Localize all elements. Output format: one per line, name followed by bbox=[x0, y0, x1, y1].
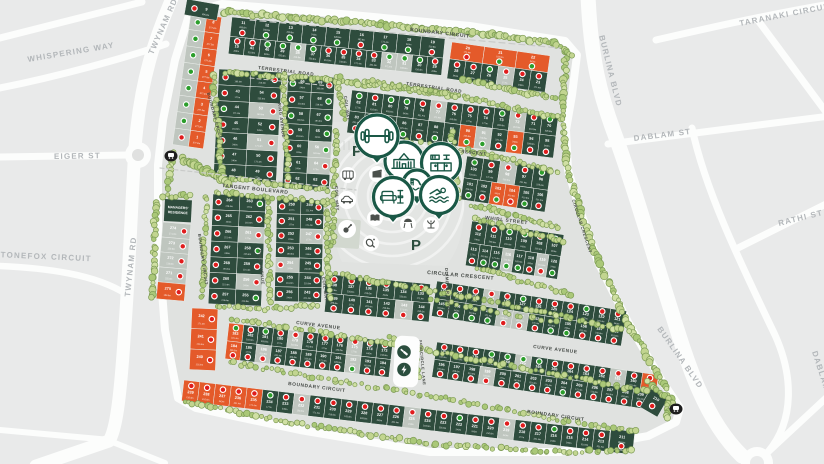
svg-text:13: 13 bbox=[288, 26, 293, 30]
svg-text:35: 35 bbox=[341, 55, 346, 59]
svg-text:182: 182 bbox=[247, 333, 254, 338]
svg-text:52: 52 bbox=[258, 122, 262, 126]
svg-text:225.6m: 225.6m bbox=[258, 98, 266, 100]
svg-text:83: 83 bbox=[354, 115, 359, 119]
svg-text:225: 225 bbox=[408, 416, 415, 421]
svg-text:246: 246 bbox=[305, 247, 311, 251]
svg-text:243m: 243m bbox=[243, 285, 249, 287]
svg-text:12: 12 bbox=[265, 23, 270, 27]
svg-text:219: 219 bbox=[503, 428, 510, 433]
svg-text:82: 82 bbox=[356, 100, 361, 104]
svg-text:17: 17 bbox=[383, 35, 388, 39]
svg-text:240m: 240m bbox=[231, 160, 237, 162]
svg-text:176: 176 bbox=[336, 343, 343, 348]
svg-text:229: 229 bbox=[345, 409, 352, 414]
svg-text:189: 189 bbox=[305, 352, 312, 357]
svg-text:243m: 243m bbox=[287, 268, 293, 270]
svg-text:67: 67 bbox=[316, 113, 320, 117]
svg-text:210.8m: 210.8m bbox=[232, 128, 240, 130]
svg-text:22: 22 bbox=[531, 55, 536, 60]
svg-text:87: 87 bbox=[418, 123, 423, 127]
svg-text:240m: 240m bbox=[315, 137, 321, 139]
svg-text:80: 80 bbox=[388, 104, 393, 108]
svg-text:65: 65 bbox=[316, 129, 320, 133]
svg-text:40: 40 bbox=[265, 48, 270, 52]
svg-text:221.4m: 221.4m bbox=[303, 298, 311, 300]
svg-text:EIGER ST: EIGER ST bbox=[54, 151, 101, 161]
svg-text:51: 51 bbox=[257, 138, 261, 142]
svg-text:183.6m: 183.6m bbox=[234, 81, 242, 83]
svg-text:185: 185 bbox=[245, 345, 252, 350]
svg-text:222: 222 bbox=[456, 422, 463, 427]
svg-text:81: 81 bbox=[372, 102, 377, 106]
svg-text:177m: 177m bbox=[289, 210, 295, 212]
svg-text:91: 91 bbox=[481, 131, 486, 135]
svg-text:33: 33 bbox=[371, 58, 376, 62]
svg-text:69: 69 bbox=[318, 80, 322, 84]
svg-text:142: 142 bbox=[383, 301, 390, 306]
svg-text:236: 236 bbox=[235, 396, 242, 401]
svg-text:237: 237 bbox=[219, 394, 226, 399]
svg-text:193: 193 bbox=[365, 359, 372, 364]
svg-text:177m: 177m bbox=[288, 224, 294, 226]
svg-text:P: P bbox=[411, 237, 421, 254]
svg-text:256: 256 bbox=[286, 290, 292, 294]
svg-text:179: 179 bbox=[292, 338, 299, 343]
svg-text:265: 265 bbox=[225, 214, 232, 218]
svg-text:25: 25 bbox=[503, 75, 508, 80]
svg-text:264: 264 bbox=[226, 198, 233, 202]
svg-text:271: 271 bbox=[166, 271, 173, 276]
svg-text:267: 267 bbox=[224, 245, 231, 249]
svg-text:86: 86 bbox=[402, 121, 407, 125]
svg-text:21: 21 bbox=[498, 51, 503, 56]
svg-text:96: 96 bbox=[538, 177, 543, 182]
svg-text:239: 239 bbox=[187, 390, 194, 395]
svg-text:221.4m: 221.4m bbox=[222, 284, 230, 286]
svg-text:28: 28 bbox=[454, 69, 459, 74]
svg-text:233: 233 bbox=[282, 401, 289, 406]
svg-text:228.6m: 228.6m bbox=[225, 206, 233, 208]
svg-text:31: 31 bbox=[402, 61, 407, 65]
svg-text:183.6m: 183.6m bbox=[287, 253, 295, 255]
svg-text:210.8m: 210.8m bbox=[242, 301, 250, 303]
svg-text:250: 250 bbox=[289, 202, 295, 206]
svg-text:18: 18 bbox=[407, 38, 412, 42]
svg-text:225.6m: 225.6m bbox=[197, 344, 205, 346]
svg-text:221.4m: 221.4m bbox=[243, 269, 251, 271]
svg-text:27: 27 bbox=[470, 71, 475, 76]
svg-text:180: 180 bbox=[277, 336, 284, 341]
svg-text:88: 88 bbox=[434, 125, 439, 129]
svg-text:210.8m: 210.8m bbox=[298, 103, 306, 105]
svg-text:171.4m: 171.4m bbox=[233, 113, 241, 115]
svg-text:232: 232 bbox=[298, 403, 305, 408]
svg-text:248: 248 bbox=[306, 217, 312, 221]
svg-text:181: 181 bbox=[262, 335, 269, 340]
svg-text:92: 92 bbox=[497, 133, 502, 137]
svg-text:46: 46 bbox=[233, 137, 237, 141]
svg-text:72: 72 bbox=[515, 120, 520, 124]
svg-text:255: 255 bbox=[287, 275, 293, 279]
svg-text:183: 183 bbox=[232, 331, 239, 336]
svg-text:217: 217 bbox=[534, 432, 541, 437]
svg-text:43: 43 bbox=[235, 89, 239, 93]
svg-text:225.6m: 225.6m bbox=[244, 254, 252, 256]
svg-text:20: 20 bbox=[465, 46, 470, 51]
svg-text:171.4m: 171.4m bbox=[255, 145, 263, 147]
svg-text:225.6m: 225.6m bbox=[196, 364, 204, 366]
svg-text:243m: 243m bbox=[296, 152, 302, 154]
svg-text:187: 187 bbox=[275, 349, 282, 354]
svg-text:228.6m: 228.6m bbox=[315, 104, 323, 106]
svg-text:240m: 240m bbox=[257, 130, 263, 132]
svg-text:58: 58 bbox=[299, 112, 303, 116]
svg-text:241: 241 bbox=[197, 334, 204, 338]
svg-text:247: 247 bbox=[306, 232, 312, 236]
svg-text:37: 37 bbox=[311, 52, 316, 56]
svg-text:177m: 177m bbox=[245, 238, 251, 240]
svg-text:221: 221 bbox=[471, 424, 478, 429]
svg-text:210.6m: 210.6m bbox=[304, 283, 312, 285]
svg-text:177: 177 bbox=[321, 341, 328, 346]
svg-text:210.6m: 210.6m bbox=[296, 136, 304, 138]
svg-text:19: 19 bbox=[430, 40, 435, 44]
svg-text:215: 215 bbox=[566, 435, 573, 440]
svg-text:183.6m: 183.6m bbox=[315, 120, 323, 122]
svg-text:63: 63 bbox=[313, 177, 317, 181]
svg-text:210.6m: 210.6m bbox=[221, 300, 229, 302]
svg-text:183.6m: 183.6m bbox=[223, 268, 231, 270]
svg-text:79: 79 bbox=[404, 106, 409, 110]
svg-text:240: 240 bbox=[197, 355, 204, 359]
svg-text:57: 57 bbox=[300, 96, 304, 100]
svg-text:32: 32 bbox=[387, 60, 392, 64]
svg-text:76: 76 bbox=[451, 112, 456, 116]
svg-text:177m: 177m bbox=[313, 169, 319, 171]
svg-text:228: 228 bbox=[361, 411, 368, 416]
svg-text:68: 68 bbox=[317, 97, 321, 101]
svg-text:261: 261 bbox=[245, 230, 252, 234]
svg-text:136: 136 bbox=[365, 286, 372, 291]
svg-text:50: 50 bbox=[256, 154, 260, 158]
svg-text:61: 61 bbox=[296, 160, 300, 164]
svg-text:183.6m: 183.6m bbox=[257, 114, 265, 116]
svg-text:235: 235 bbox=[250, 398, 257, 403]
svg-text:99: 99 bbox=[488, 170, 493, 175]
svg-text:45: 45 bbox=[234, 121, 238, 125]
svg-text:231: 231 bbox=[313, 405, 320, 410]
svg-text:10: 10 bbox=[234, 44, 239, 48]
svg-text:255: 255 bbox=[242, 293, 249, 297]
svg-text:243: 243 bbox=[304, 290, 310, 294]
svg-text:263: 263 bbox=[246, 199, 253, 203]
svg-text:135: 135 bbox=[383, 288, 390, 293]
svg-text:30: 30 bbox=[417, 63, 422, 67]
svg-text:272: 272 bbox=[167, 256, 174, 261]
svg-text:175: 175 bbox=[351, 345, 358, 350]
svg-text:49: 49 bbox=[255, 169, 259, 173]
svg-text:186: 186 bbox=[260, 347, 267, 352]
svg-text:141: 141 bbox=[366, 300, 373, 305]
svg-text:266: 266 bbox=[225, 230, 232, 234]
svg-text:140: 140 bbox=[348, 298, 355, 303]
svg-text:71: 71 bbox=[531, 122, 536, 126]
svg-text:41: 41 bbox=[250, 46, 255, 50]
svg-text:243m: 243m bbox=[287, 297, 293, 299]
svg-text:95: 95 bbox=[545, 139, 550, 143]
svg-text:243m: 243m bbox=[288, 239, 294, 241]
svg-text:213: 213 bbox=[598, 439, 605, 444]
svg-text:210.6m: 210.6m bbox=[304, 269, 312, 271]
svg-text:93: 93 bbox=[513, 135, 518, 139]
svg-text:240m: 240m bbox=[232, 144, 238, 146]
svg-text:171.4m: 171.4m bbox=[305, 225, 313, 227]
svg-text:190: 190 bbox=[320, 354, 327, 359]
svg-text:221.4m: 221.4m bbox=[306, 210, 314, 212]
svg-text:171.4m: 171.4m bbox=[198, 323, 206, 325]
svg-text:218: 218 bbox=[519, 430, 526, 435]
svg-text:75: 75 bbox=[467, 114, 472, 118]
svg-text:53: 53 bbox=[259, 106, 263, 110]
svg-text:192: 192 bbox=[350, 357, 357, 362]
svg-text:38: 38 bbox=[295, 51, 300, 55]
svg-text:210.6m: 210.6m bbox=[258, 82, 266, 84]
svg-text:171.4m: 171.4m bbox=[254, 161, 262, 163]
svg-text:230: 230 bbox=[329, 407, 336, 412]
svg-text:227: 227 bbox=[377, 413, 384, 418]
svg-text:210.8m: 210.8m bbox=[286, 283, 294, 285]
svg-text:226: 226 bbox=[392, 415, 399, 420]
svg-text:16: 16 bbox=[359, 33, 364, 37]
svg-text:11: 11 bbox=[241, 21, 245, 25]
svg-text:183.6m: 183.6m bbox=[316, 88, 324, 90]
svg-text:270: 270 bbox=[164, 287, 171, 292]
svg-text:252: 252 bbox=[288, 232, 294, 236]
svg-text:240m: 240m bbox=[224, 253, 230, 255]
svg-text:98: 98 bbox=[505, 172, 510, 177]
svg-text:188: 188 bbox=[290, 351, 297, 356]
svg-text:15: 15 bbox=[336, 30, 341, 34]
svg-text:29: 29 bbox=[432, 65, 437, 69]
svg-text:23: 23 bbox=[536, 80, 541, 85]
svg-text:47: 47 bbox=[232, 152, 236, 156]
svg-text:273: 273 bbox=[168, 241, 175, 246]
svg-text:73: 73 bbox=[499, 118, 504, 122]
svg-text:256: 256 bbox=[243, 277, 250, 281]
svg-text:220: 220 bbox=[487, 426, 494, 431]
svg-text:210.6m: 210.6m bbox=[245, 222, 253, 224]
svg-text:245: 245 bbox=[305, 261, 311, 265]
svg-text:191: 191 bbox=[335, 356, 342, 361]
svg-text:77: 77 bbox=[436, 110, 441, 114]
svg-text:183.6m: 183.6m bbox=[297, 120, 305, 122]
svg-text:26: 26 bbox=[487, 73, 492, 78]
svg-text:260: 260 bbox=[223, 277, 230, 281]
svg-text:243m: 243m bbox=[299, 87, 305, 89]
svg-text:243m: 243m bbox=[295, 168, 301, 170]
svg-text:242: 242 bbox=[198, 314, 205, 318]
svg-text:59: 59 bbox=[298, 128, 302, 132]
svg-text:257: 257 bbox=[222, 292, 229, 296]
svg-text:178: 178 bbox=[306, 340, 313, 345]
svg-text:177m: 177m bbox=[306, 239, 312, 241]
svg-text:36: 36 bbox=[326, 54, 331, 58]
svg-text:90: 90 bbox=[466, 129, 471, 133]
svg-text:183.6m: 183.6m bbox=[313, 153, 321, 155]
svg-text:177m: 177m bbox=[247, 207, 253, 209]
svg-text:143: 143 bbox=[401, 303, 408, 308]
svg-text:262: 262 bbox=[246, 215, 253, 219]
svg-text:259: 259 bbox=[244, 262, 251, 266]
svg-text:251: 251 bbox=[288, 217, 294, 221]
svg-text:70: 70 bbox=[547, 124, 552, 128]
svg-text:268: 268 bbox=[223, 261, 230, 265]
svg-text:221.4m: 221.4m bbox=[224, 237, 232, 239]
svg-text:223: 223 bbox=[440, 420, 447, 425]
svg-text:60: 60 bbox=[297, 144, 301, 148]
svg-text:173: 173 bbox=[381, 348, 388, 353]
svg-text:78: 78 bbox=[420, 108, 425, 112]
svg-text:216: 216 bbox=[550, 433, 557, 438]
svg-text:97: 97 bbox=[522, 175, 527, 180]
svg-text:258: 258 bbox=[244, 246, 251, 250]
svg-text:253: 253 bbox=[287, 246, 293, 250]
svg-text:211: 211 bbox=[619, 435, 626, 440]
svg-text:48: 48 bbox=[231, 168, 235, 172]
svg-text:56: 56 bbox=[315, 145, 319, 149]
svg-text:243m: 243m bbox=[226, 221, 232, 223]
svg-text:137: 137 bbox=[348, 285, 355, 290]
svg-text:177m: 177m bbox=[235, 97, 241, 99]
svg-text:240m: 240m bbox=[305, 254, 311, 256]
svg-text:39: 39 bbox=[280, 49, 285, 53]
svg-text:62: 62 bbox=[295, 177, 299, 181]
svg-text:254: 254 bbox=[287, 261, 294, 265]
svg-text:244: 244 bbox=[304, 276, 311, 280]
svg-text:238: 238 bbox=[203, 392, 210, 397]
